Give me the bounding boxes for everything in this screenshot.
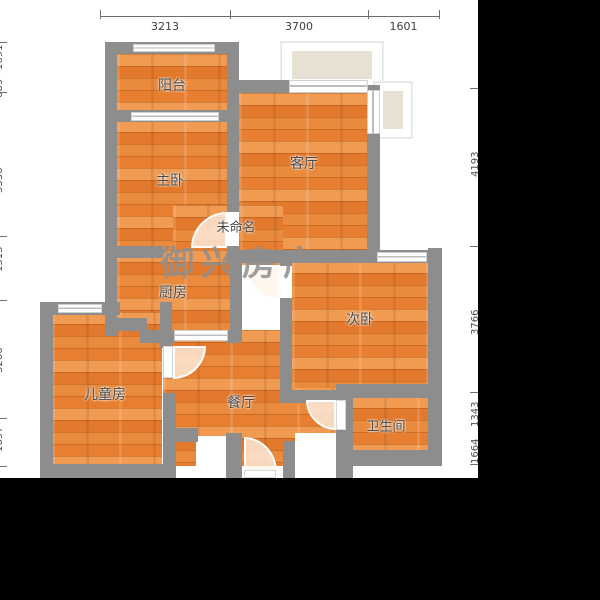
wall-segment bbox=[226, 330, 242, 343]
wall-segment bbox=[283, 441, 295, 478]
room-label-living-room: 客厅 bbox=[290, 153, 318, 173]
wall-segment bbox=[176, 428, 198, 442]
dimension-tick bbox=[0, 300, 7, 301]
dimension-tick bbox=[368, 10, 369, 19]
wall-segment bbox=[163, 393, 176, 478]
wall-segment bbox=[239, 80, 291, 93]
wall-segment bbox=[105, 42, 117, 254]
dimension-left-3: 3356 bbox=[0, 168, 5, 193]
wall-segment bbox=[336, 384, 442, 398]
bay-window-right bbox=[380, 88, 406, 132]
room-label-kitchen: 厨房 bbox=[159, 282, 187, 302]
room-label-balcony: 阳台 bbox=[158, 75, 186, 95]
window-children-room bbox=[58, 304, 102, 313]
wall-segment bbox=[227, 42, 239, 212]
room-label-children-room: 儿童房 bbox=[84, 384, 126, 404]
wall-segment bbox=[428, 248, 442, 466]
dimension-tick bbox=[0, 236, 7, 237]
window-kitchen bbox=[174, 330, 228, 341]
dimension-tick bbox=[0, 42, 7, 43]
dimension-tick bbox=[0, 92, 7, 93]
dimension-tick bbox=[0, 466, 7, 467]
wall-segment bbox=[340, 450, 442, 466]
window-living-right bbox=[367, 90, 380, 134]
room-label-dining-room: 餐厅 bbox=[227, 392, 255, 412]
dimension-top-1: 3213 bbox=[100, 20, 230, 33]
dimension-right-3: 1343 bbox=[470, 402, 478, 427]
dimension-tick bbox=[470, 246, 478, 247]
dimension-top-2: 3700 bbox=[230, 20, 368, 33]
dimension-left-2: 689 bbox=[0, 79, 5, 98]
wall-segment bbox=[226, 433, 242, 478]
dimension-right-4: 1664 bbox=[470, 439, 478, 464]
window-living-bay-opening bbox=[289, 80, 368, 93]
watermark-text: 御兴房产 bbox=[160, 236, 324, 285]
dimension-tick bbox=[470, 88, 478, 89]
window-balcony bbox=[133, 44, 215, 52]
dimension-tick bbox=[100, 10, 101, 19]
wall-segment bbox=[40, 302, 53, 478]
window-second-bedroom bbox=[377, 252, 427, 262]
floor-plan-image: 阳台 主卧 客厅 未命名 厨房 次卧 儿童房 餐厅 卫生间 御兴房产 3213 … bbox=[0, 0, 478, 478]
bay-window-top bbox=[289, 48, 375, 82]
room-label-second-bedroom: 次卧 bbox=[346, 309, 374, 329]
wall-segment bbox=[160, 302, 172, 348]
dimension-left-5: 3266 bbox=[0, 348, 5, 373]
room-label-bathroom: 卫生间 bbox=[366, 416, 405, 435]
door-leaf-children bbox=[163, 346, 173, 378]
dimension-tick bbox=[0, 418, 7, 419]
room-label-unnamed: 未命名 bbox=[216, 217, 255, 236]
screenshot-canvas: 阳台 主卧 客厅 未命名 厨房 次卧 儿童房 餐厅 卫生间 御兴房产 3213 … bbox=[0, 0, 600, 600]
dimension-top-3: 1601 bbox=[368, 20, 439, 33]
entry-recess-left bbox=[196, 436, 226, 478]
window-master-bedroom bbox=[131, 112, 219, 121]
dimension-right-2: 3766 bbox=[470, 310, 478, 335]
entry-recess-right bbox=[295, 433, 336, 477]
dimension-tick bbox=[470, 392, 478, 393]
door-leaf-bathroom bbox=[336, 400, 346, 430]
dimension-left-4: 1313 bbox=[0, 247, 5, 272]
room-label-master-bedroom: 主卧 bbox=[156, 170, 184, 190]
dimension-right-1: 4193 bbox=[470, 152, 478, 177]
dimension-line-top bbox=[100, 16, 440, 17]
wall-segment bbox=[40, 464, 173, 478]
dimension-left-6: 1697 bbox=[0, 427, 5, 452]
door-leaf-entrance bbox=[244, 470, 276, 478]
dimension-left-1: 1691 bbox=[0, 45, 5, 70]
dimension-tick bbox=[439, 10, 440, 19]
dimension-tick bbox=[230, 10, 231, 19]
dimension-tick bbox=[470, 464, 478, 465]
